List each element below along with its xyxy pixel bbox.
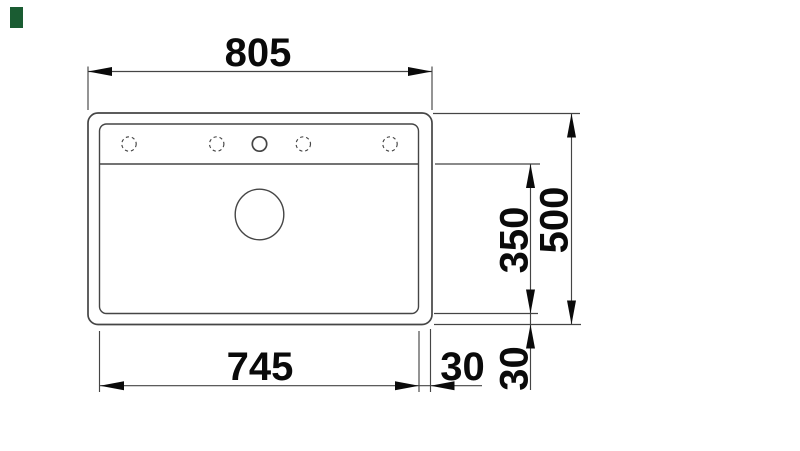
dim-label-bowl-depth: 350 xyxy=(493,207,537,274)
arrowhead-bottom xyxy=(567,301,576,325)
arrowhead-right xyxy=(408,67,432,76)
dim-label-overall-depth: 500 xyxy=(533,187,577,254)
drain-outline xyxy=(235,189,284,240)
dim-label-bottom-rim: 30 xyxy=(493,346,537,391)
sink-inner-rim xyxy=(100,124,419,314)
tap-hole-dashed-2 xyxy=(210,137,224,151)
tap-hole-dashed-1 xyxy=(122,137,136,151)
tap-hole-dashed-4 xyxy=(383,137,397,151)
arrowhead-bottom xyxy=(526,290,535,314)
arrowhead-left xyxy=(100,381,124,390)
drawing-canvas: 805 745 30 350 xyxy=(0,0,800,451)
tap-hole-dashed-3 xyxy=(296,137,310,151)
tap-hole-solid xyxy=(252,137,266,151)
tap-holes xyxy=(122,137,397,151)
sink-technical-drawing: 805 745 30 350 xyxy=(0,0,800,451)
arrowhead-top xyxy=(567,114,576,138)
dim-bowl-width: 745 xyxy=(100,329,483,392)
dim-right-rim: 30 xyxy=(431,345,485,390)
dim-label-bowl-width: 745 xyxy=(227,345,294,389)
dim-label-overall-width: 805 xyxy=(225,31,292,75)
dim-overall-width: 805 xyxy=(88,31,432,110)
arrowhead-left xyxy=(88,67,112,76)
arrowhead-right xyxy=(395,381,419,390)
brand-mark xyxy=(10,7,23,28)
sink-outer-rim xyxy=(88,113,432,325)
sink-outline xyxy=(88,113,432,325)
arrowhead-outside-up xyxy=(526,325,535,349)
dim-label-right-rim: 30 xyxy=(440,345,485,389)
dim-bottom-rim: 30 xyxy=(493,325,537,391)
arrowhead-top xyxy=(526,164,535,188)
